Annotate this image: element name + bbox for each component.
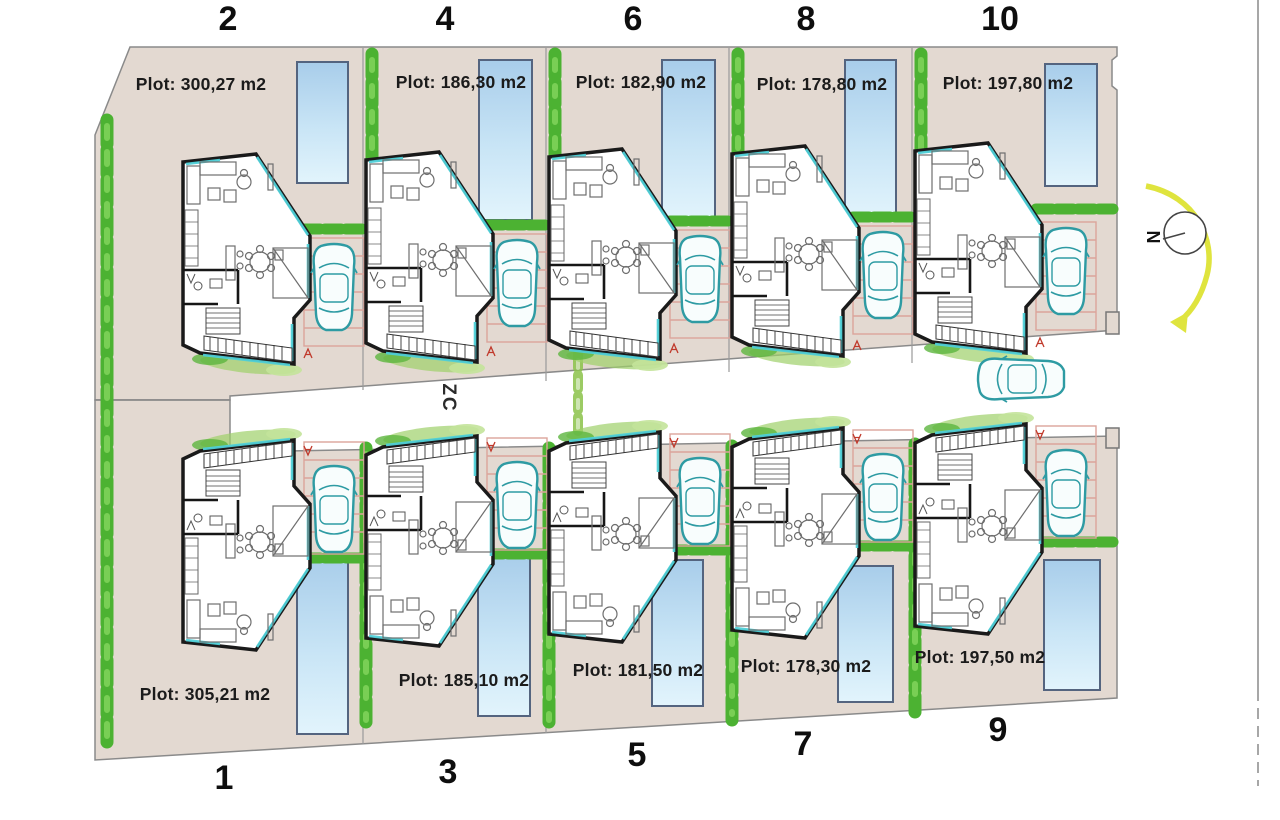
north-arrow-head bbox=[1170, 312, 1188, 333]
plot-number-5: 5 bbox=[628, 738, 647, 772]
pool-plot-9 bbox=[1044, 560, 1100, 690]
plot-area-label-8: Plot: 178,80 m2 bbox=[757, 74, 887, 95]
car-street bbox=[978, 356, 1064, 402]
car-plot-4 bbox=[494, 240, 540, 326]
plot-number-8: 8 bbox=[797, 2, 816, 36]
street-label: ZC bbox=[438, 383, 459, 412]
pool-plot-2 bbox=[297, 62, 348, 183]
plot-number-3: 3 bbox=[439, 755, 458, 789]
pool-plot-3 bbox=[478, 554, 530, 716]
car-plot-5 bbox=[677, 458, 723, 544]
plot-area-label-3: Plot: 185,10 m2 bbox=[399, 670, 529, 691]
plot-number-10: 10 bbox=[981, 2, 1019, 36]
right-street bbox=[1106, 0, 1258, 786]
site-plan: N ZC 2 4 6 8 10 1 3 5 7 9 Plot: 300,27 m… bbox=[0, 0, 1280, 820]
plot-area-label-4: Plot: 186,30 m2 bbox=[396, 72, 526, 93]
car-plot-3 bbox=[494, 462, 540, 548]
north-arrow-arc bbox=[1146, 186, 1209, 321]
plot-area-label-1: Plot: 305,21 m2 bbox=[140, 684, 270, 705]
plot-area-label-10: Plot: 197,80 m2 bbox=[943, 73, 1073, 94]
plot-area-label-7: Plot: 178,30 m2 bbox=[741, 656, 871, 677]
compass: N bbox=[1143, 186, 1209, 333]
car-plot-6 bbox=[677, 236, 723, 322]
plot-number-9: 9 bbox=[989, 713, 1008, 747]
car-plot-2 bbox=[311, 244, 357, 330]
car-plot-10 bbox=[1043, 228, 1089, 314]
gate-pillar-top bbox=[1106, 312, 1119, 334]
plot-area-label-5: Plot: 181,50 m2 bbox=[573, 660, 703, 681]
pool-plot-1 bbox=[297, 556, 348, 734]
car-plot-1 bbox=[311, 466, 357, 552]
plot-area-label-6: Plot: 182,90 m2 bbox=[576, 72, 706, 93]
pool-plot-7 bbox=[838, 566, 893, 702]
plot-number-6: 6 bbox=[624, 2, 643, 36]
plot-area-label-9: Plot: 197,50 m2 bbox=[915, 647, 1045, 668]
plot-number-4: 4 bbox=[436, 2, 455, 36]
plot-number-7: 7 bbox=[794, 727, 813, 761]
car-plot-7 bbox=[860, 454, 906, 540]
plot-area-label-2: Plot: 300,27 m2 bbox=[136, 74, 266, 95]
gate-pillar-bottom bbox=[1106, 428, 1119, 448]
plot-number-2: 2 bbox=[219, 2, 238, 36]
car-plot-9 bbox=[1043, 450, 1089, 536]
car-plot-8 bbox=[860, 232, 906, 318]
plot-number-1: 1 bbox=[215, 761, 234, 795]
north-label: N bbox=[1143, 231, 1163, 244]
